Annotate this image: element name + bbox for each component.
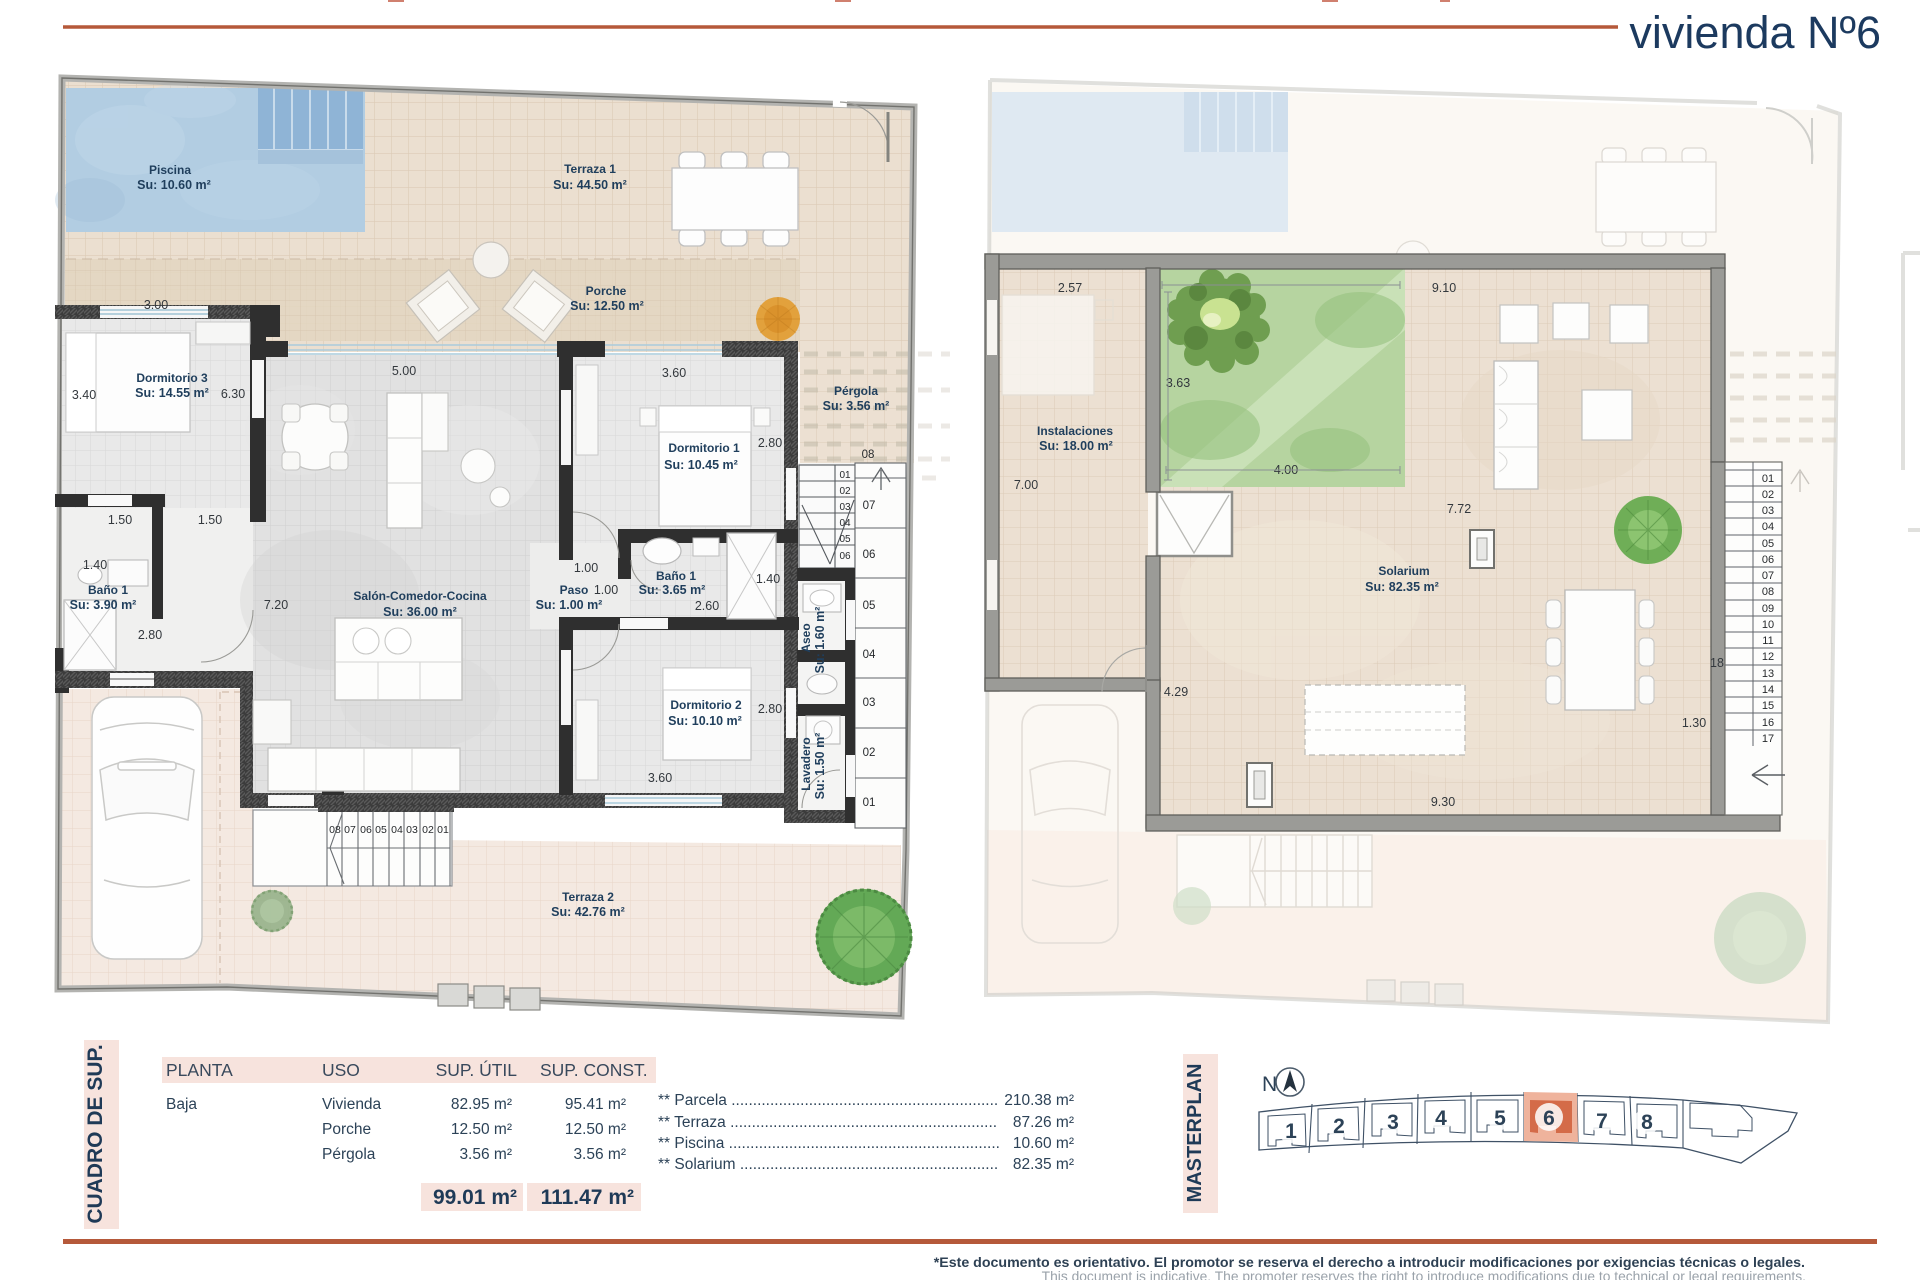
svg-text:3.60: 3.60 xyxy=(648,771,672,785)
svg-text:03: 03 xyxy=(839,502,851,513)
svg-text:1.50: 1.50 xyxy=(198,513,222,527)
svg-text:12.50 m²: 12.50 m² xyxy=(451,1121,512,1138)
svg-text:3.56 m²: 3.56 m² xyxy=(459,1146,512,1163)
svg-text:Baño 1: Baño 1 xyxy=(656,569,696,583)
svg-text:01: 01 xyxy=(863,797,876,809)
svg-text:CUADRO DE SUP.: CUADRO DE SUP. xyxy=(84,1044,107,1223)
svg-text:5: 5 xyxy=(1494,1107,1506,1130)
svg-text:12: 12 xyxy=(1762,651,1774,663)
svg-text:3.40: 3.40 xyxy=(72,388,96,402)
svg-text:2.60: 2.60 xyxy=(695,599,719,613)
svg-text:** Parcela ...................: ** Parcela .............................… xyxy=(658,1092,998,1109)
svg-text:08: 08 xyxy=(1762,586,1774,598)
svg-text:1: 1 xyxy=(1285,1120,1297,1143)
svg-text:Su: 12.50 m²: Su: 12.50 m² xyxy=(570,299,644,313)
svg-text:210.38 m²: 210.38 m² xyxy=(1004,1092,1074,1109)
svg-text:Lavadero: Lavadero xyxy=(799,737,813,790)
svg-text:6.30: 6.30 xyxy=(221,387,245,401)
svg-text:Su: 10.60 m²: Su: 10.60 m² xyxy=(137,178,211,192)
svg-text:08: 08 xyxy=(862,449,875,461)
svg-text:3.63: 3.63 xyxy=(1166,376,1190,390)
svg-text:N: N xyxy=(1262,1073,1277,1096)
svg-text:Su: 10.10 m²: Su: 10.10 m² xyxy=(668,714,742,728)
svg-text:07: 07 xyxy=(1762,570,1774,582)
svg-text:1.00: 1.00 xyxy=(594,583,618,597)
svg-text:** Piscina ...................: ** Piscina .............................… xyxy=(658,1135,1000,1152)
svg-text:Su: 36.00 m²: Su: 36.00 m² xyxy=(383,605,457,619)
svg-text:Porche: Porche xyxy=(322,1121,371,1138)
svg-text:Paso: Paso xyxy=(560,583,589,597)
svg-text:Su: 10.45 m²: Su: 10.45 m² xyxy=(664,458,738,472)
svg-text:14: 14 xyxy=(1762,684,1774,696)
svg-text:06: 06 xyxy=(863,549,876,561)
svg-text:3: 3 xyxy=(1387,1111,1399,1134)
svg-text:Dormitorio 2: Dormitorio 2 xyxy=(670,698,742,712)
svg-text:02: 02 xyxy=(839,486,851,497)
svg-text:vivienda Nº6: vivienda Nº6 xyxy=(1629,7,1881,58)
svg-text:06: 06 xyxy=(360,824,372,836)
svg-text:1.40: 1.40 xyxy=(83,558,107,572)
svg-text:PLANTA: PLANTA xyxy=(166,1060,233,1080)
svg-text:Pérgola: Pérgola xyxy=(322,1146,376,1163)
svg-text:Su: 3.65 m²: Su: 3.65 m² xyxy=(639,583,706,597)
svg-text:2.80: 2.80 xyxy=(138,628,162,642)
svg-text:02: 02 xyxy=(863,747,876,759)
svg-text:Su: 14.55 m²: Su: 14.55 m² xyxy=(135,386,209,400)
svg-text:10.60 m²: 10.60 m² xyxy=(1013,1135,1074,1152)
svg-text:Su: 44.50 m²: Su: 44.50 m² xyxy=(553,178,627,192)
svg-text:06: 06 xyxy=(1762,554,1774,566)
svg-text:** Terraza ...................: ** Terraza .............................… xyxy=(658,1114,997,1131)
svg-text:7.00: 7.00 xyxy=(1014,478,1038,492)
svg-text:Solarium: Solarium xyxy=(1378,564,1429,578)
svg-text:Su: 1.60 m²: Su: 1.60 m² xyxy=(813,607,827,674)
svg-text:Salón-Comedor-Cocina: Salón-Comedor-Cocina xyxy=(353,589,487,603)
svg-text:05: 05 xyxy=(839,534,851,545)
svg-text:Su: 1.50 m²: Su: 1.50 m² xyxy=(813,733,827,800)
svg-text:Su: 82.35 m²: Su: 82.35 m² xyxy=(1365,580,1439,594)
svg-text:8: 8 xyxy=(1641,1111,1653,1134)
svg-text:9.10: 9.10 xyxy=(1432,281,1456,295)
svg-text:01: 01 xyxy=(839,470,851,481)
svg-text:Su: 1.00 m²: Su: 1.00 m² xyxy=(536,598,603,612)
svg-text:10: 10 xyxy=(1762,619,1774,631)
svg-text:03: 03 xyxy=(1762,505,1774,517)
svg-text:02: 02 xyxy=(1762,489,1774,501)
svg-text:12.50 m²: 12.50 m² xyxy=(565,1121,626,1138)
svg-text:07: 07 xyxy=(344,824,356,836)
svg-text:15: 15 xyxy=(1762,700,1774,712)
svg-text:Porche: Porche xyxy=(586,284,627,298)
svg-text:04: 04 xyxy=(839,518,851,529)
svg-text:Su: 18.00 m²: Su: 18.00 m² xyxy=(1039,439,1113,453)
svg-text:01: 01 xyxy=(1762,473,1774,485)
svg-text:05: 05 xyxy=(1762,538,1774,550)
svg-text:Pérgola: Pérgola xyxy=(834,384,878,398)
svg-text:05: 05 xyxy=(375,824,387,836)
svg-text:SUP. ÚTIL: SUP. ÚTIL xyxy=(436,1059,518,1080)
svg-text:08: 08 xyxy=(329,824,341,836)
svg-text:7: 7 xyxy=(1596,1110,1608,1133)
svg-text:MASTERPLAN: MASTERPLAN xyxy=(1184,1064,1206,1203)
svg-text:3.56 m²: 3.56 m² xyxy=(573,1146,626,1163)
svg-text:11: 11 xyxy=(1762,635,1773,647)
svg-text:99.01 m²: 99.01 m² xyxy=(433,1186,517,1209)
svg-text:06: 06 xyxy=(839,551,851,562)
svg-text:Su: 3.90 m²: Su: 3.90 m² xyxy=(70,598,137,612)
svg-text:Baño 1: Baño 1 xyxy=(88,583,128,597)
svg-text:Terraza 2: Terraza 2 xyxy=(562,890,614,904)
svg-text:2.80: 2.80 xyxy=(758,436,782,450)
svg-text:82.95 m²: 82.95 m² xyxy=(451,1096,512,1113)
svg-text:4.29: 4.29 xyxy=(1164,685,1188,699)
svg-text:2.80: 2.80 xyxy=(758,702,782,716)
svg-text:Baja: Baja xyxy=(166,1096,197,1113)
svg-text:17: 17 xyxy=(1762,733,1774,745)
svg-text:13: 13 xyxy=(1762,668,1774,680)
svg-text:Instalaciones: Instalaciones xyxy=(1037,424,1113,438)
svg-text:3.60: 3.60 xyxy=(662,366,686,380)
svg-text:87.26 m²: 87.26 m² xyxy=(1013,1114,1074,1131)
svg-text:16: 16 xyxy=(1762,717,1774,729)
svg-text:95.41 m²: 95.41 m² xyxy=(565,1096,626,1113)
svg-text:Su: 42.76 m²: Su: 42.76 m² xyxy=(551,905,625,919)
svg-text:Aseo: Aseo xyxy=(799,623,813,652)
svg-text:82.35 m²: 82.35 m² xyxy=(1013,1156,1074,1173)
svg-text:1.40: 1.40 xyxy=(756,572,780,586)
svg-text:111.47 m²: 111.47 m² xyxy=(541,1186,634,1209)
svg-text:Su: 3.56 m²: Su: 3.56 m² xyxy=(823,399,890,413)
svg-text:SUP. CONST.: SUP. CONST. xyxy=(540,1060,648,1080)
svg-text:7.20: 7.20 xyxy=(264,598,288,612)
svg-text:04: 04 xyxy=(391,824,403,836)
svg-text:07: 07 xyxy=(863,500,876,512)
svg-text:6: 6 xyxy=(1543,1107,1555,1130)
svg-text:Dormitorio 1: Dormitorio 1 xyxy=(668,441,740,455)
svg-text:2: 2 xyxy=(1333,1115,1345,1138)
svg-text:03: 03 xyxy=(863,697,876,709)
svg-text:04: 04 xyxy=(1762,521,1774,533)
svg-text:05: 05 xyxy=(863,600,876,612)
svg-text:This document is indicative. T: This document is indicative. The promote… xyxy=(1042,1269,1806,1280)
svg-text:9.30: 9.30 xyxy=(1431,795,1455,809)
svg-text:4: 4 xyxy=(1435,1107,1447,1130)
svg-text:04: 04 xyxy=(863,649,876,661)
svg-text:5.00: 5.00 xyxy=(392,364,416,378)
svg-text:1.00: 1.00 xyxy=(574,561,598,575)
svg-text:3.00: 3.00 xyxy=(144,298,168,312)
svg-text:18: 18 xyxy=(1710,656,1724,670)
svg-text:09: 09 xyxy=(1762,603,1774,615)
svg-text:2.57: 2.57 xyxy=(1058,281,1082,295)
svg-text:Piscina: Piscina xyxy=(149,163,191,177)
svg-text:02: 02 xyxy=(422,824,434,836)
svg-text:1.50: 1.50 xyxy=(108,513,132,527)
svg-text:1.30: 1.30 xyxy=(1682,716,1706,730)
svg-text:03: 03 xyxy=(406,824,418,836)
svg-text:01: 01 xyxy=(437,824,449,836)
svg-text:** Solarium ..................: ** Solarium ............................… xyxy=(658,1156,998,1173)
svg-text:USO: USO xyxy=(322,1060,360,1080)
svg-text:Vivienda: Vivienda xyxy=(322,1096,382,1113)
svg-text:7.72: 7.72 xyxy=(1447,502,1471,516)
svg-text:Dormitorio 3: Dormitorio 3 xyxy=(136,371,208,385)
svg-text:Terraza 1: Terraza 1 xyxy=(564,162,616,176)
